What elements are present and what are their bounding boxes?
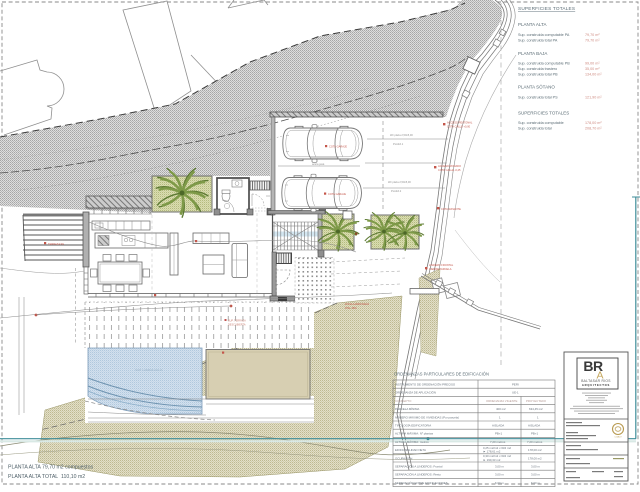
svg-text:400 m2: 400 m2: [496, 407, 506, 411]
svg-text:acera peat.: acera peat.: [312, 162, 325, 166]
svg-text:PERI: PERI: [512, 383, 519, 387]
svg-text:PARCELA MÍNIMA: PARCELA MÍNIMA: [395, 407, 419, 411]
svg-text:CONCEPTO: CONCEPTO: [395, 399, 412, 403]
svg-text:ALTURA MÁXIMA: Nº plantas: ALTURA MÁXIMA: Nº plantas: [395, 432, 434, 436]
svg-text:COTA GARAJE: COTA GARAJE: [329, 145, 347, 149]
svg-text:PLAZA 1: PLAZA 1: [393, 142, 404, 146]
svg-text:AISLADA: AISLADA: [528, 424, 540, 428]
svg-text:Sup. construida total: Sup. construida total: [518, 127, 552, 131]
svg-text:634,45 m2: 634,45 m2: [529, 407, 543, 411]
svg-text:ZONA AJARDINADA: ZONA AJARDINADA: [345, 302, 369, 306]
svg-text:ORDENANZA VIGENTE: ORDENANZA VIGENTE: [486, 399, 518, 403]
svg-text:► 190,33 m2: ► 190,33 m2: [483, 458, 501, 462]
svg-text:SUPERFICIES TOTALES: SUPERFICIES TOTALES: [518, 111, 569, 116]
svg-text:PLANTA SÓTANO: PLANTA SÓTANO: [518, 84, 555, 90]
svg-text:NÚMERO MÁXIMO DE VIVIENDAS (Po: NÚMERO MÁXIMO DE VIVIENDAS (Por parcela): [395, 415, 459, 419]
svg-text:ORDENANZA DE APLICACIÓN: ORDENANZA DE APLICACIÓN: [395, 390, 436, 395]
svg-text:Sup. construida computable PB: Sup. construida computable PB: [518, 62, 570, 66]
svg-text:178,00 m²: 178,00 m²: [585, 121, 602, 125]
svg-text:99,00 m²: 99,00 m²: [585, 62, 600, 66]
svg-text:3,00 m: 3,00 m: [495, 465, 504, 469]
svg-text:35,00 m²: 35,00 m²: [585, 67, 600, 71]
svg-text:79,70 m²: 79,70 m²: [585, 33, 600, 37]
svg-text:LINDERO FRONTAL: LINDERO FRONTAL: [429, 263, 454, 267]
svg-text:TIPOLOGÍA EDIFICATORIA: TIPOLOGÍA EDIFICATORIA: [395, 424, 431, 428]
svg-text:PTE. 28%: PTE. 28%: [345, 306, 357, 310]
svg-text:► 178,61 m2: ► 178,61 m2: [483, 450, 501, 454]
svg-text:SUP. LAMINA AGUA: SUP. LAMINA AGUA: [135, 368, 163, 372]
svg-text:SUP. TERRAZA: SUP. TERRAZA: [228, 320, 246, 323]
svg-text:178,00 m2: 178,00 m2: [528, 448, 542, 452]
svg-text:Sup. construida computable PA: Sup. construida computable PA: [518, 33, 570, 37]
svg-text:PROYECTADO: PROYECTADO: [526, 399, 547, 403]
svg-text:PLANTA ALTA 79,70 m2 compuesto: PLANTA ALTA 79,70 m2 compuestos: [8, 465, 93, 471]
svg-text:COTA RASANTE: COTA RASANTE: [441, 207, 461, 211]
svg-text:3,00 m: 3,00 m: [531, 465, 540, 469]
svg-text:Wc plaza 2,50x5,00: Wc plaza 2,50x5,00: [390, 133, 413, 137]
svg-text:BALTASAR RIOS: BALTASAR RIOS: [581, 379, 611, 383]
svg-text:79,70 m²: 79,70 m²: [585, 39, 600, 43]
svg-text:Sup. construida total PB: Sup. construida total PB: [518, 73, 558, 77]
svg-text:AISLADA: AISLADA: [492, 424, 504, 428]
svg-text:DESCUBIERTA: DESCUBIERTA: [228, 324, 246, 327]
svg-text:ALTURA MÁXIMA: metros: ALTURA MÁXIMA: metros: [395, 440, 429, 444]
svg-text:Wc plaza 2,50x5,00: Wc plaza 2,50x5,00: [388, 180, 411, 184]
svg-text:178,00 m2: 178,00 m2: [528, 456, 542, 460]
svg-text:EDIFICABILIDAD NETA: EDIFICABILIDAD NETA: [395, 448, 426, 452]
svg-text:3,00 m: 3,00 m: [495, 473, 504, 477]
svg-text:6,00 m: 6,00 m: [495, 481, 504, 485]
svg-text:UE-1: UE-1: [512, 391, 519, 395]
svg-text:ARQUITECTOS: ARQUITECTOS: [582, 383, 610, 387]
svg-text:Sup. construida total PA: Sup. construida total PA: [518, 39, 558, 43]
svg-text:ORDENANZAS PARTICULARES DE EDI: ORDENANZAS PARTICULARES DE EDIFICACIÓN: [394, 372, 489, 377]
svg-text:PLANTA BAJA: PLANTA BAJA: [518, 51, 547, 56]
svg-text:COTA CALLE -0,45: COTA CALLE -0,45: [438, 168, 461, 172]
svg-text:ACCESO RODADO: ACCESO RODADO: [438, 164, 461, 168]
svg-text:208,70 m²: 208,70 m²: [585, 127, 602, 131]
svg-text:3,00 m: 3,00 m: [531, 473, 540, 477]
svg-text:7,20 metros: 7,20 metros: [490, 440, 506, 444]
svg-text:SEPARACIÓN A LINDEROS: Frontal: SEPARACIÓN A LINDEROS: Frontal: [395, 464, 443, 469]
svg-text:121,90 m²: 121,90 m²: [585, 96, 602, 100]
svg-text:Sup. construida computable: Sup. construida computable: [518, 121, 564, 125]
svg-text:6,00 m: 6,00 m: [531, 481, 540, 485]
svg-text:PB+1: PB+1: [495, 432, 503, 436]
svg-text:PLAZA 2: PLAZA 2: [391, 189, 402, 193]
svg-text:SEPARACIÓN ENTRE EDIFICACIONES: SEPARACIÓN ENTRE EDIFICACIONES: [395, 480, 448, 485]
svg-text:ACCESO PEATONAL: ACCESO PEATONAL: [447, 121, 473, 125]
svg-text:7,20 metros: 7,20 metros: [527, 440, 543, 444]
svg-text:SUPERFICIES TOTALES: SUPERFICIES TOTALES: [518, 6, 575, 11]
svg-text:Sup. construida trastero: Sup. construida trastero: [518, 67, 557, 71]
svg-text:TERRAZA PA: TERRAZA PA: [48, 242, 64, 246]
svg-text:COTA GARAJE: COTA GARAJE: [328, 192, 346, 196]
svg-text:COTA CALLE +0,00: COTA CALLE +0,00: [447, 125, 471, 129]
svg-text:134,00 m²: 134,00 m²: [585, 73, 602, 77]
svg-text:PLANTA ALTA TOTAL 110,10 m2: PLANTA ALTA TOTAL 110,10 m2: [8, 474, 85, 480]
svg-text:CIERRE PARCELA: CIERRE PARCELA: [429, 267, 452, 271]
svg-text:PB+1: PB+1: [531, 432, 539, 436]
svg-text:SEPARACIÓN A LINDEROS: Resto: SEPARACIÓN A LINDEROS: Resto: [395, 472, 441, 477]
svg-text:OCUPACIÓN: OCUPACIÓN: [395, 455, 412, 460]
svg-text:INSTRUMENTO DE ORDENACIÓN PREC: INSTRUMENTO DE ORDENACIÓN PRECISO: [395, 382, 456, 387]
svg-text:PLANTA ALTA: PLANTA ALTA: [518, 22, 547, 27]
svg-text:Sup. construida total PS: Sup. construida total PS: [518, 96, 558, 100]
svg-text:COACV: COACV: [614, 436, 622, 439]
